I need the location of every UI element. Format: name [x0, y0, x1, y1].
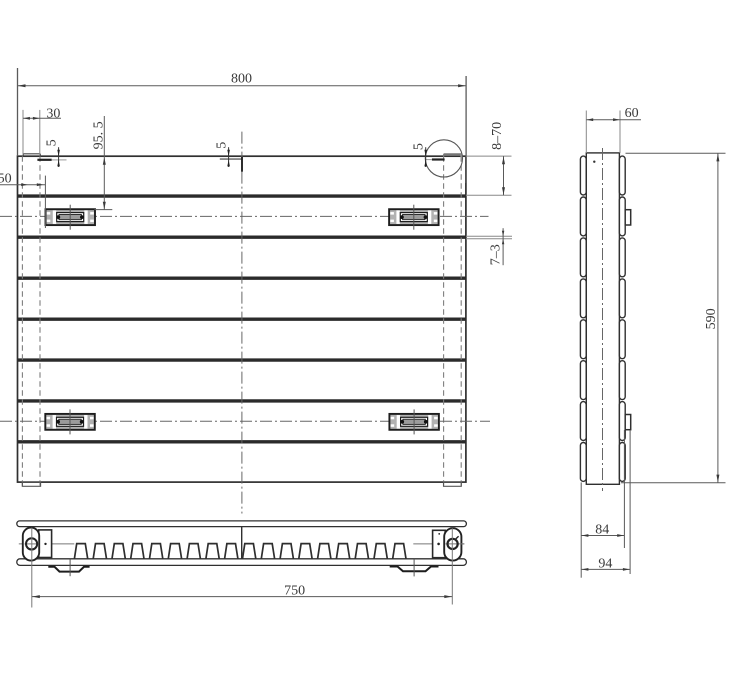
svg-text:5: 5: [215, 142, 230, 149]
svg-text:750: 750: [284, 583, 305, 598]
svg-text:95. 5: 95. 5: [91, 121, 106, 149]
svg-text:7–3: 7–3: [489, 244, 504, 265]
svg-text:590: 590: [704, 308, 719, 329]
svg-text:800: 800: [231, 72, 252, 87]
svg-text:84: 84: [595, 523, 609, 538]
svg-text:30: 30: [46, 107, 60, 122]
svg-text:94: 94: [598, 557, 612, 572]
svg-text:5: 5: [412, 143, 427, 150]
svg-text:8–70: 8–70: [490, 122, 505, 150]
svg-text:60: 60: [625, 106, 639, 121]
svg-text:5: 5: [45, 139, 60, 146]
svg-text:50: 50: [0, 171, 12, 186]
